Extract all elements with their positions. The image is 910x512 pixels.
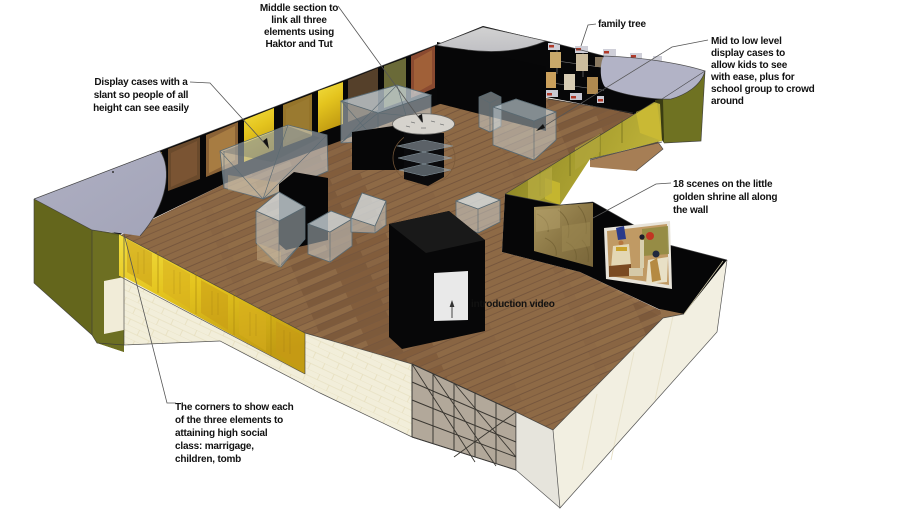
- svg-text:introduction video: introduction video: [471, 299, 555, 310]
- svg-text:slant so people of all: slant so people of all: [94, 90, 189, 101]
- svg-text:height can see easily: height can see easily: [93, 103, 189, 114]
- svg-text:allow kids to see: allow kids to see: [711, 60, 788, 71]
- svg-text:of the three elements to: of the three elements to: [175, 415, 283, 426]
- svg-text:The corners to show each: The corners to show each: [175, 402, 294, 413]
- svg-text:school group to crowd: school group to crowd: [711, 84, 815, 95]
- svg-text:golden shrine all along: golden shrine all along: [673, 192, 777, 203]
- svg-text:elements using: elements using: [264, 27, 334, 38]
- svg-text:family tree: family tree: [598, 19, 646, 30]
- svg-text:Middle section to: Middle section to: [260, 3, 338, 14]
- svg-text:Haktor and Tut: Haktor and Tut: [265, 39, 333, 50]
- svg-text:class: marrigage,: class: marrigage,: [175, 441, 254, 452]
- svg-text:Mid to low level: Mid to low level: [711, 36, 782, 47]
- svg-text:18 scenes on the little: 18 scenes on the little: [673, 179, 773, 190]
- svg-text:display cases to: display cases to: [711, 48, 785, 59]
- svg-text:children, tomb: children, tomb: [175, 454, 241, 465]
- svg-text:with ease, plus for: with ease, plus for: [710, 72, 795, 83]
- svg-text:the wall: the wall: [673, 205, 708, 216]
- svg-text:attaining high social: attaining high social: [175, 428, 268, 439]
- svg-text:link all three: link all three: [271, 15, 327, 26]
- svg-text:Display cases with a: Display cases with a: [94, 77, 188, 88]
- svg-text:around: around: [711, 96, 744, 107]
